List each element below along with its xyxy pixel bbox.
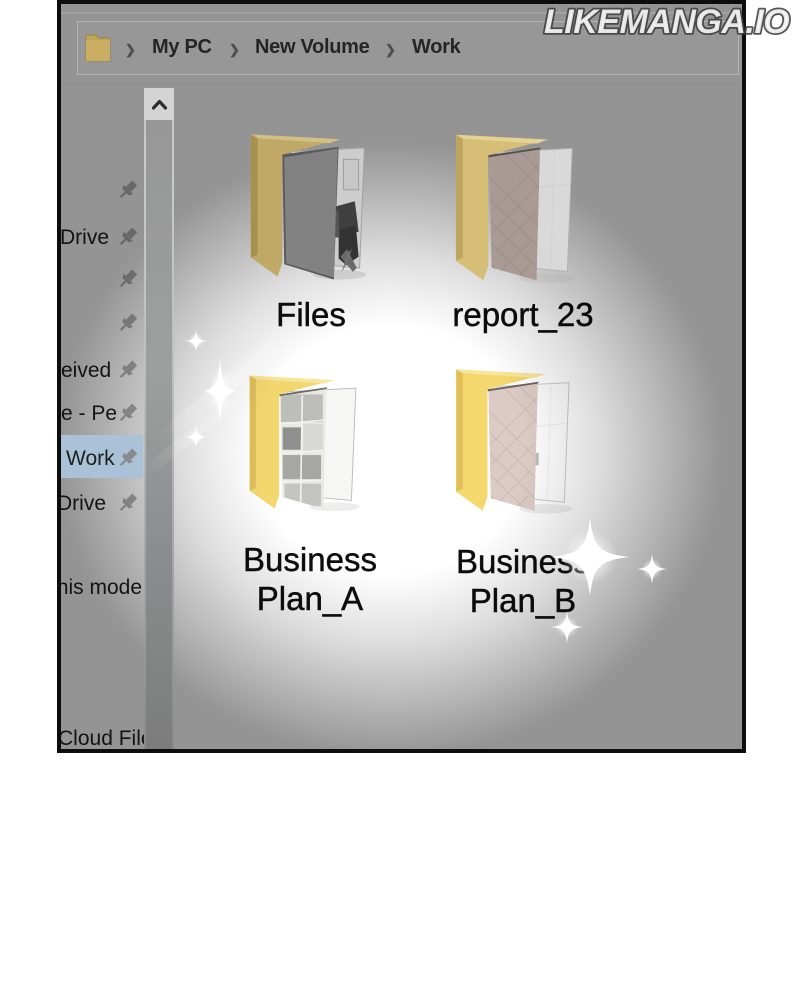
svg-text:LIKEMANGA.IO: LIKEMANGA.IO [544, 3, 789, 41]
